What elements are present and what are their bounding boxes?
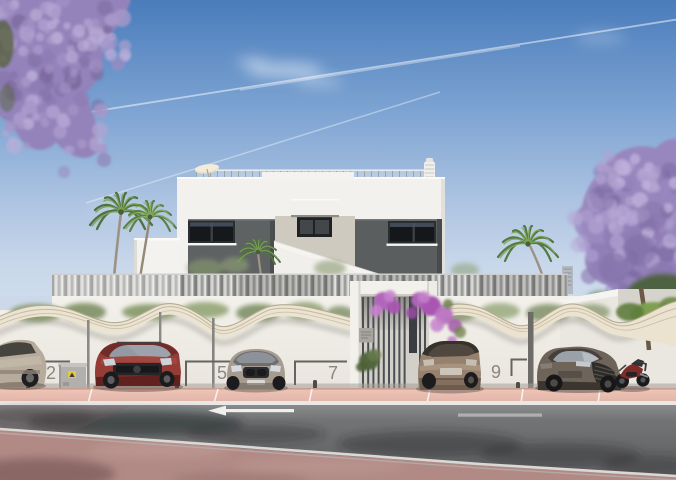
svg-text:7: 7 (328, 363, 338, 383)
svg-text:9: 9 (491, 362, 501, 382)
svg-text:5: 5 (217, 363, 227, 383)
svg-text:2: 2 (46, 363, 56, 383)
